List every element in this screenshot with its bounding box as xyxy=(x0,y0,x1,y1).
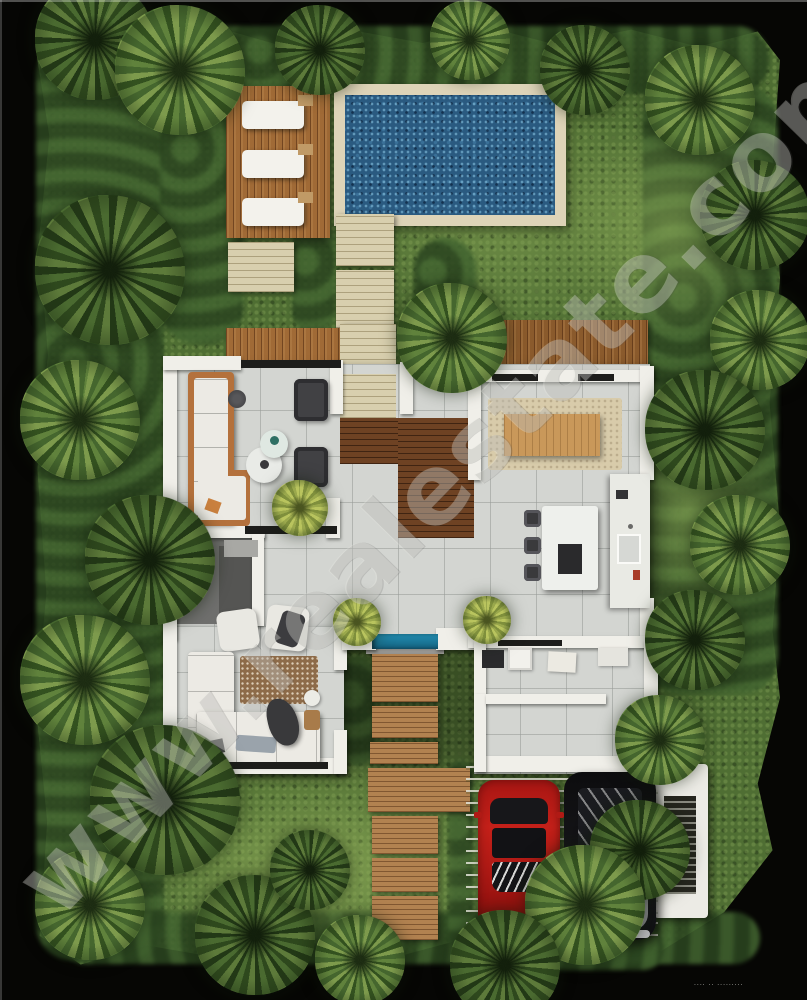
swimming-pool xyxy=(334,84,566,226)
bar-stool xyxy=(524,537,541,554)
potted-palm xyxy=(463,596,511,644)
palm-tree xyxy=(430,0,510,80)
bathroom-vanity xyxy=(224,540,258,557)
plunge-pool xyxy=(372,634,438,649)
stepping-stone xyxy=(336,214,394,266)
timber-walkway-panel xyxy=(372,654,438,702)
palm-tree xyxy=(540,25,630,115)
palm-tree xyxy=(115,5,245,135)
timber-walkway-panel-wide xyxy=(368,768,470,812)
wall xyxy=(486,694,606,704)
glass-door-track xyxy=(498,640,562,646)
palm-tree xyxy=(20,360,140,480)
cooktop xyxy=(558,544,582,574)
sun-lounger xyxy=(242,198,304,226)
lounger-headrest xyxy=(298,144,313,155)
timber-walkway-panel xyxy=(372,706,438,738)
washer xyxy=(508,648,532,670)
palm-tree xyxy=(270,830,350,910)
car-roof xyxy=(492,828,546,858)
bar-stool xyxy=(524,510,541,527)
palm-tree xyxy=(690,495,790,595)
palm-tree xyxy=(615,695,705,785)
car-windshield xyxy=(490,798,548,824)
wall xyxy=(330,360,343,414)
kettle xyxy=(633,570,640,580)
side-table xyxy=(228,390,246,408)
sun-lounger xyxy=(242,101,304,129)
palm-tree xyxy=(645,370,765,490)
laundry-appliance xyxy=(482,650,504,668)
sofa-chaise-cushion xyxy=(198,476,246,520)
villa-floor-plan-render: www.realestate.com ···· ·· ········· xyxy=(0,0,807,1000)
table-decor xyxy=(270,436,279,445)
palm-tree xyxy=(35,195,185,345)
lounger-headrest xyxy=(298,95,313,106)
timber-walkway-panel xyxy=(372,816,438,854)
utility-bench xyxy=(598,648,628,666)
counter-appliance xyxy=(616,490,628,499)
bar-stool xyxy=(524,564,541,581)
lounger-headrest xyxy=(298,192,313,203)
palm-tree xyxy=(315,915,405,1000)
utility-counter xyxy=(547,651,576,672)
left-edge-line xyxy=(0,0,2,1000)
armchair xyxy=(294,379,328,421)
kitchen-sink xyxy=(617,534,641,564)
side-mirror xyxy=(474,812,482,818)
palm-tree xyxy=(85,495,215,625)
timber-walkway-panel xyxy=(372,858,438,892)
hedge-path-left xyxy=(292,222,336,334)
wall xyxy=(163,356,241,370)
timber-walkway-panel xyxy=(370,742,438,764)
faucet xyxy=(628,524,633,529)
credit-text: ···· ·· ········· xyxy=(694,982,743,989)
wood-stool xyxy=(304,710,320,730)
stepping-stone xyxy=(228,242,294,292)
palm-tree xyxy=(645,590,745,690)
stepping-stone xyxy=(336,270,394,328)
table-decor xyxy=(260,460,269,469)
wall xyxy=(334,730,347,774)
palm-tree xyxy=(275,5,365,95)
entry-stone xyxy=(340,374,396,418)
side-mirror xyxy=(556,812,564,818)
glass-door-track xyxy=(241,360,341,368)
sun-lounger xyxy=(242,150,304,178)
top-edge-line xyxy=(0,0,807,2)
wall xyxy=(474,694,486,772)
